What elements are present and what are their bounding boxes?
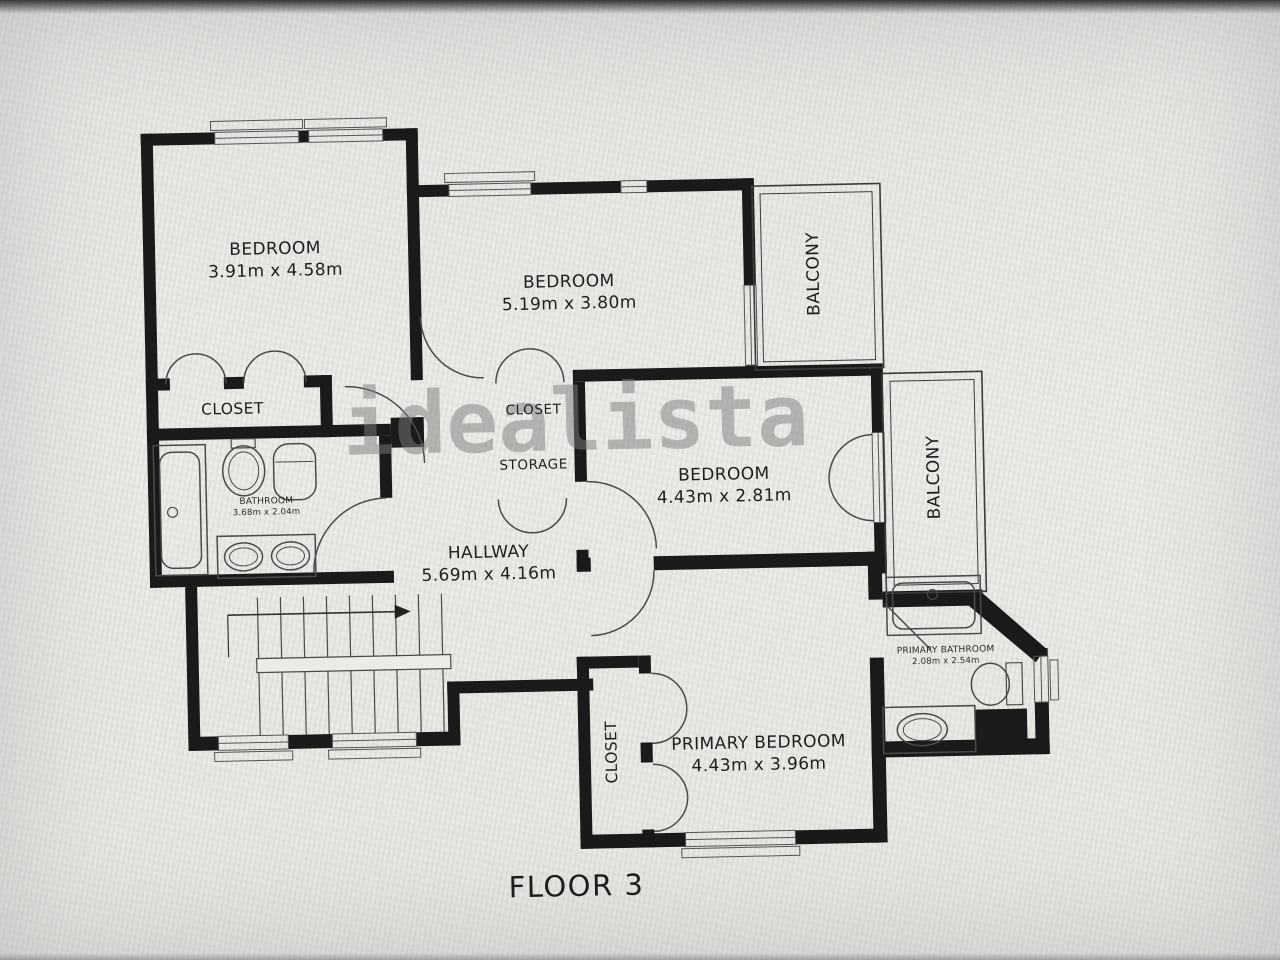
room-dimensions: 2.08m x 2.54m (897, 655, 995, 669)
room-label-closet-middle: CLOSET (505, 401, 561, 420)
room-dimensions: 5.19m x 3.80m (502, 292, 637, 317)
toilet-icon (222, 438, 265, 496)
walls (141, 115, 1052, 858)
room-name: STORAGE (499, 456, 568, 475)
primary-toilet-icon (971, 663, 1023, 706)
floorplan-drawing (0, 0, 1280, 960)
floorplan: idealista BEDROOM 3.91m x 4.58m BEDROOM … (0, 0, 1280, 960)
room-label-hallway: HALLWAY 5.69m x 4.16m (421, 540, 557, 587)
room-name: CLOSET (201, 398, 264, 419)
room-label-balcony-top: BALCONY (802, 232, 826, 316)
floor-title: FLOOR 3 (508, 868, 644, 905)
room-label-bathroom: BATHROOM 3.68m x 2.04m (233, 495, 301, 520)
room-label-closet-primary: CLOSET (601, 721, 622, 784)
room-name: HALLWAY (421, 540, 556, 565)
room-label-bedroom-top-middle: BEDROOM 5.19m x 3.80m (501, 269, 637, 316)
room-label-closet-left: CLOSET (201, 398, 264, 419)
room-dimensions: 5.69m x 4.16m (421, 562, 556, 587)
bathtub-icon (153, 445, 208, 576)
room-name: BALCONY (922, 435, 946, 519)
room-label-primary-bedroom: PRIMARY BEDROOM 4.43m x 3.96m (671, 730, 847, 778)
room-dimensions: 3.91m x 4.58m (208, 259, 343, 284)
room-label-balcony-right: BALCONY (922, 435, 946, 519)
room-name: BEDROOM (656, 462, 791, 487)
room-name: BEDROOM (207, 237, 342, 262)
floorplan-photo: idealista BEDROOM 3.91m x 4.58m BEDROOM … (0, 0, 1280, 960)
room-name: CLOSET (505, 401, 561, 420)
stairs-icon (227, 594, 452, 737)
room-name: CLOSET (601, 721, 622, 784)
balcony-outline (752, 181, 987, 596)
room-dimensions: 3.68m x 2.04m (233, 507, 301, 520)
room-label-bedroom-middle-right: BEDROOM 4.43m x 2.81m (656, 462, 792, 509)
room-label-primary-bathroom: PRIMARY BATHROOM 2.08m x 2.54m (897, 643, 995, 669)
room-dimensions: 4.43m x 3.96m (671, 752, 846, 778)
stairs-direction-arrow (395, 604, 411, 618)
double-sink-icon (217, 534, 316, 578)
photo-bottom-shadow (0, 953, 1280, 960)
room-label-bedroom-top-left: BEDROOM 3.91m x 4.58m (207, 237, 343, 284)
photo-top-shadow (0, 0, 1280, 14)
room-name: BALCONY (802, 232, 826, 316)
room-name: BEDROOM (501, 269, 636, 294)
bidet-icon (273, 443, 316, 500)
room-name: PRIMARY BATHROOM (897, 643, 995, 657)
room-label-storage: STORAGE (499, 456, 568, 475)
room-dimensions: 4.43m x 2.81m (657, 484, 792, 509)
